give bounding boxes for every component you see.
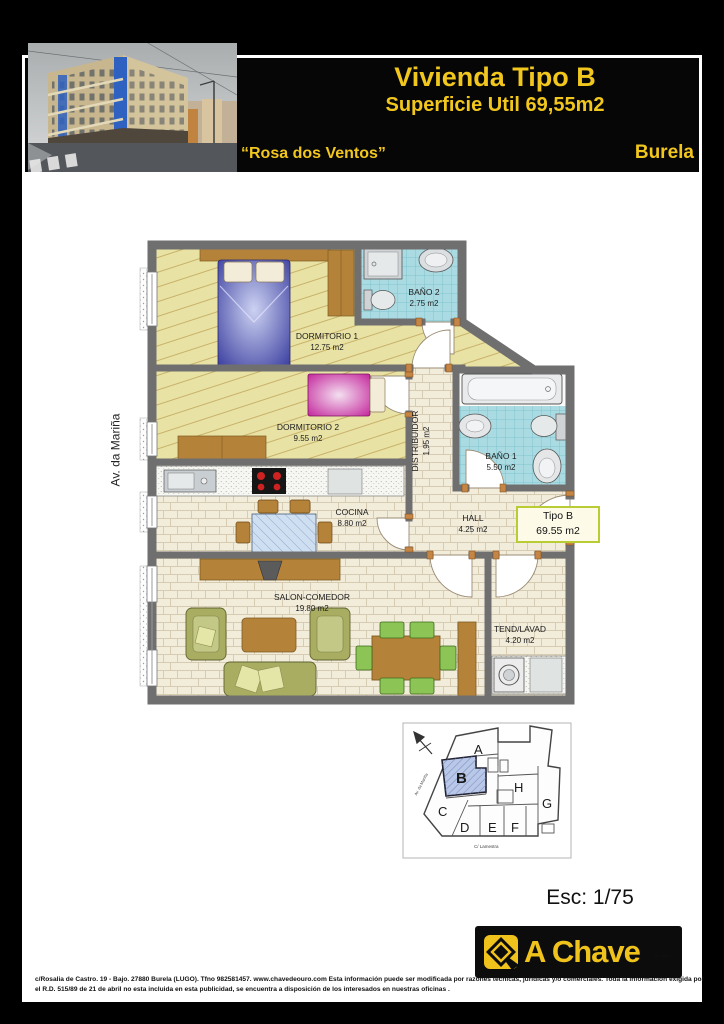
page-subtitle: Superficie Util 69,55m2	[300, 94, 690, 117]
keyplan-street-bottom: C/ Lamestra	[474, 844, 499, 849]
room-label-tend-lavad: TEND/LAVAD 4.20 m2	[470, 624, 570, 646]
building-photo	[28, 43, 237, 172]
unit-letter-f: F	[511, 820, 519, 835]
legal-footer: c/Rosalia de Castro. 19 - Bajo. 27880 Bu…	[35, 975, 692, 995]
street-label-avenue: Av. da Mariña	[60, 395, 170, 505]
footer-line-1: c/Rosalia de Castro. 19 - Bajo. 27880 Bu…	[35, 975, 692, 985]
unit-letter-g: G	[542, 796, 552, 811]
room-label-hall: HALL 4.25 m2	[423, 513, 523, 535]
scale-label: Esc: 1/75	[500, 886, 680, 910]
unit-letter-h: H	[514, 780, 523, 795]
room-label-salon-comedor: SALON-COMEDOR 19.80 m2	[252, 592, 372, 614]
flyer-page: Vivienda Tipo B Superficie Util 69,55m2 …	[0, 0, 724, 1024]
unit-letter-a: A	[474, 742, 483, 757]
unit-letter-b: B	[456, 770, 467, 787]
room-label-dormitorio-1: DORMITORIO 1 12.75 m2	[267, 331, 387, 353]
room-label-cocina: COCINA 8.80 m2	[302, 507, 402, 529]
unit-letter-e: E	[488, 820, 497, 835]
city-name: Burela	[540, 142, 694, 164]
footer-line-2: el R.D. 515/89 de 21 de abril no esta in…	[35, 985, 692, 995]
type-b-area-badge: Tipo B 69.55 m2	[516, 506, 600, 543]
brand-sub: de ouro	[655, 953, 672, 958]
room-label-bano-1: BAÑO 1 5.50 m2	[451, 451, 551, 473]
room-label-dormitorio-2: DORMITORIO 2 9.55 m2	[248, 422, 368, 444]
key-icon	[481, 932, 521, 972]
brand-name: A Chave	[524, 934, 640, 970]
brand-logo: A Chave de ouro	[475, 926, 682, 978]
unit-letter-c: C	[438, 804, 447, 819]
room-label-distribuidor: DISTRIBUIDOR 1.95 m2	[410, 396, 432, 486]
unit-letter-d: D	[460, 820, 469, 835]
residence-name: “Rosa dos Ventos”	[241, 145, 386, 163]
page-title: Vivienda Tipo B	[300, 62, 690, 92]
floor-plan	[100, 230, 600, 720]
room-label-bano-2: BAÑO 2 2.75 m2	[384, 287, 464, 309]
key-plan: A B C D E F G H Av. da Mariña C/ Lamestr…	[402, 720, 572, 860]
